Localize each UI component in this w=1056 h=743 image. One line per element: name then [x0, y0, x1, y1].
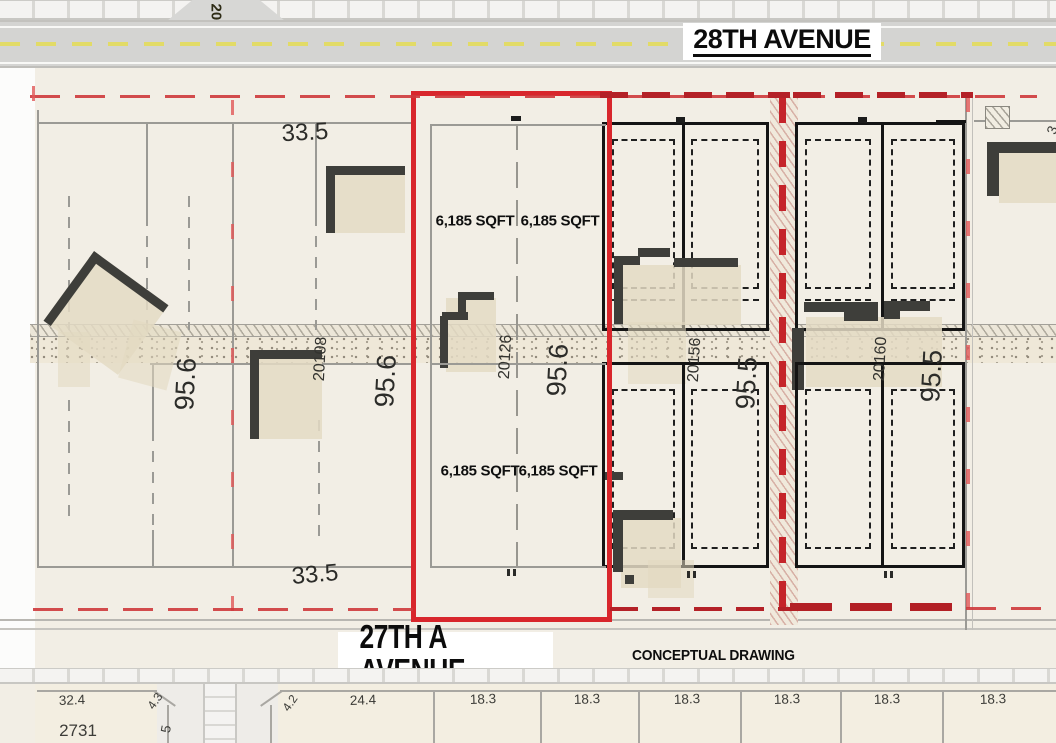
lot-area-label-ne: 6,185 SQFT [521, 213, 600, 230]
street-label-28th-text: 28TH AVENUE [693, 26, 871, 57]
address-label-20126: 20126 [496, 334, 516, 379]
setback-line [805, 299, 871, 301]
south-lot-address-2731: 2731 [59, 721, 97, 741]
lot-line [152, 530, 154, 568]
lot-area-label-sw: 6,185 SQFT [441, 463, 520, 480]
building-edge [623, 510, 673, 520]
setback-dashed-rect [805, 389, 871, 549]
lot-frontage-line [37, 690, 157, 692]
depth-label-95-6-subject: 95.6 [541, 343, 575, 397]
lot-divider [638, 692, 640, 743]
lot-divider [433, 692, 435, 743]
red-boundary-bottom-thick [790, 603, 968, 611]
width-label-33-5-bottom: 33.5 [291, 559, 340, 591]
lot-divider [881, 362, 884, 568]
lot-line [146, 122, 148, 215]
lot-divider [840, 692, 842, 743]
address-label-20156: 20156 [685, 337, 705, 382]
building-edge [884, 301, 930, 311]
lot-divider [540, 692, 542, 743]
conceptual-site-plan: 201 [0, 0, 1056, 743]
red-property-line [966, 97, 970, 630]
lot-divider [881, 122, 884, 331]
south-lot-width: 18.3 [574, 691, 601, 707]
setback-line [68, 400, 70, 520]
building-edge [613, 510, 623, 572]
road-edge-line [0, 62, 1056, 64]
red-boundary-top-thick [600, 92, 790, 98]
edge-dimension-label: 3 [1043, 124, 1056, 137]
building-edge [987, 142, 999, 196]
depth-label-95-6-west: 95.6 [169, 357, 203, 411]
building-shadow [58, 332, 90, 387]
setback-dashed-rect [691, 389, 759, 549]
road-edge-line [0, 26, 1056, 28]
south-lot-width: 24.4 [350, 692, 377, 708]
south-lot-width: 18.3 [674, 691, 701, 707]
street-label-28th-avenue: 28TH AVENUE [683, 23, 881, 60]
lot-line [37, 122, 413, 124]
lot-side-line [270, 705, 272, 743]
red-boundary-top-thick [793, 92, 973, 98]
building-edge [674, 258, 738, 267]
south-lot-width: 18.3 [874, 691, 901, 707]
red-boundary-bottom [33, 608, 413, 611]
setback-line [152, 430, 154, 530]
building-footprint [623, 265, 741, 325]
lot-line [37, 110, 39, 568]
building-edge [614, 256, 623, 324]
building-footprint [999, 153, 1056, 203]
lot-side-line [167, 705, 169, 743]
south-lot-width: 18.3 [774, 691, 801, 707]
setback-dashed-rect [805, 139, 871, 289]
setback-dashed-rect [891, 389, 955, 549]
depth-label-95-6-mid: 95.6 [369, 354, 403, 408]
building-shadow [648, 560, 694, 598]
south-lot-width: 18.3 [470, 691, 497, 707]
lot-divider [942, 692, 944, 743]
red-boundary-bottom [966, 607, 1056, 610]
setback-line [315, 215, 317, 330]
building-edge [625, 575, 634, 584]
depth-label-95-5-east2: 95.5 [915, 349, 949, 403]
lot-area-label-se: 6,185 SQFT [519, 463, 598, 480]
setback-dashed-rect [891, 139, 955, 289]
address-label-20160: 20160 [871, 336, 891, 381]
survey-tick [676, 117, 685, 123]
lot-area-label-nw: 6,185 SQFT [436, 213, 515, 230]
red-boundary-vertical [779, 97, 786, 625]
address-label-20108: 20108 [311, 336, 331, 381]
hatch-symbol [985, 106, 1010, 129]
lot-divider [682, 362, 685, 568]
depth-label-95-5-east1: 95.5 [730, 356, 764, 410]
28th-avenue-road [0, 20, 1056, 68]
building-edge [884, 311, 900, 319]
red-property-line [231, 100, 234, 615]
north-sidewalk-strip [0, 0, 1056, 20]
south-lot-width: 32.4 [59, 692, 86, 708]
lot-line [37, 566, 413, 568]
survey-tick [687, 571, 696, 578]
red-boundary-bottom [610, 607, 792, 611]
building-edge [844, 312, 878, 321]
red-boundary-left [32, 86, 35, 118]
building-edge [804, 302, 878, 312]
building-edge [638, 248, 670, 257]
south-lot-width: 18.3 [980, 691, 1007, 707]
survey-tick [858, 117, 867, 123]
lot-line [936, 120, 966, 123]
setback-line [188, 196, 190, 330]
lot-frontage-line [280, 690, 1056, 692]
conceptual-drawing-note: CONCEPTUAL DRAWING [632, 647, 795, 664]
left-margin [0, 68, 35, 668]
lot-divider [740, 692, 742, 743]
road-centerline [0, 42, 1056, 46]
lot-line [972, 97, 973, 630]
driveway-walkway [203, 684, 237, 743]
south-sidewalk-strip [0, 668, 1056, 684]
width-label-33-5-top: 33.5 [281, 118, 329, 148]
survey-tick [884, 571, 893, 578]
building-footprint [326, 166, 405, 233]
